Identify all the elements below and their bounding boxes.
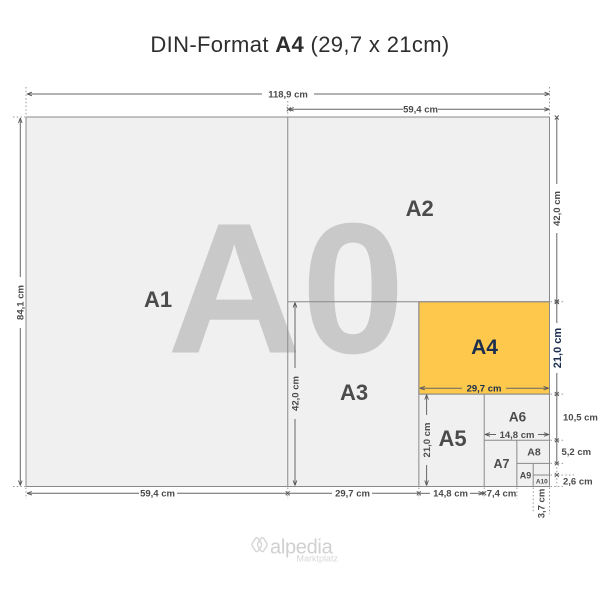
svg-text:A7: A7	[494, 457, 510, 471]
svg-text:59,4 cm: 59,4 cm	[140, 489, 175, 500]
svg-text:29,7 cm: 29,7 cm	[467, 384, 502, 395]
svg-text:A4: A4	[471, 336, 498, 359]
svg-text:A1: A1	[144, 287, 172, 312]
svg-text:21,0 cm: 21,0 cm	[422, 423, 433, 458]
svg-text:14,8 cm: 14,8 cm	[500, 430, 535, 441]
svg-text:A6: A6	[509, 410, 527, 425]
svg-text:DIN-Format A4 (29,7 x 21cm): DIN-Format A4 (29,7 x 21cm)	[150, 32, 449, 57]
svg-text:84,1 cm: 84,1 cm	[16, 285, 27, 320]
svg-text:A0: A0	[167, 186, 405, 393]
svg-text:14,8 cm: 14,8 cm	[433, 489, 468, 500]
svg-text:5,2 cm: 5,2 cm	[562, 447, 592, 458]
svg-text:A10: A10	[536, 478, 548, 485]
svg-text:3,7 cm: 3,7 cm	[536, 489, 547, 519]
svg-text:A8: A8	[527, 447, 541, 459]
svg-text:A3: A3	[340, 380, 368, 405]
svg-text:Marktplatz: Marktplatz	[296, 554, 338, 564]
svg-text:2,6 cm: 2,6 cm	[563, 476, 593, 487]
svg-text:A2: A2	[406, 196, 434, 221]
svg-text:118,9 cm: 118,9 cm	[268, 89, 308, 100]
svg-text:A9: A9	[520, 471, 532, 481]
svg-text:42,0 cm: 42,0 cm	[552, 191, 563, 226]
svg-text:42,0 cm: 42,0 cm	[290, 376, 301, 411]
svg-text:59,4 cm: 59,4 cm	[403, 105, 438, 116]
svg-text:10,5 cm: 10,5 cm	[563, 413, 598, 424]
svg-text:29,7 cm: 29,7 cm	[335, 489, 370, 500]
svg-text:A5: A5	[438, 426, 466, 451]
svg-text:21,0 cm: 21,0 cm	[552, 328, 564, 369]
svg-text:7,4 cm: 7,4 cm	[487, 489, 517, 500]
